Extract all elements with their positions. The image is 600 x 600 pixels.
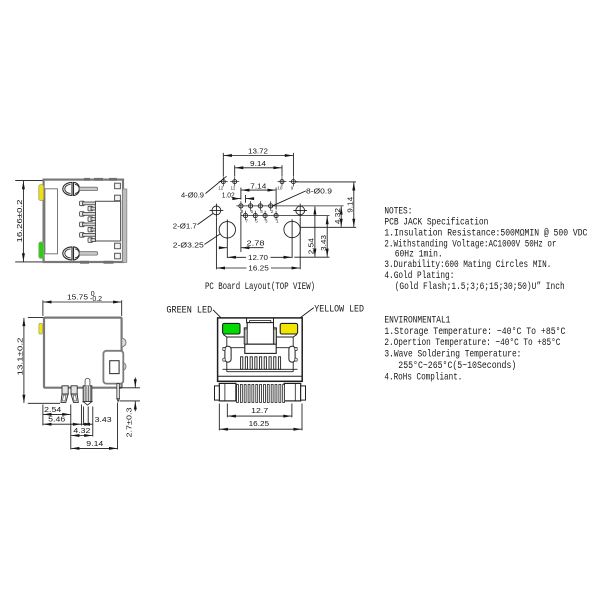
svg-text:255°C~265°C(5~10Seconds): 255°C~265°C(5~10Seconds) [398, 360, 516, 372]
svg-text:9.14: 9.14 [347, 197, 354, 213]
svg-text:(Gold Flash;1.5;3;6;15;30;50)U: (Gold Flash;1.5;3;6;15;30;50)U” Inch [395, 281, 565, 293]
svg-text:3: 3 [265, 219, 268, 224]
svg-text:11: 11 [231, 185, 236, 190]
svg-text:16.25: 16.25 [249, 421, 270, 428]
svg-text:GREEN LED: GREEN LED [166, 304, 212, 316]
svg-text:2: 2 [271, 209, 274, 214]
svg-text:1.02: 1.02 [222, 193, 235, 200]
svg-text:12.7: 12.7 [251, 408, 268, 415]
svg-text:2.54: 2.54 [309, 238, 316, 254]
svg-text:1: 1 [276, 219, 279, 224]
svg-text:4.32: 4.32 [73, 428, 90, 435]
svg-text:2-Ø1.7: 2-Ø1.7 [173, 224, 197, 231]
svg-text:9: 9 [291, 185, 294, 190]
svg-text:13.72: 13.72 [248, 149, 268, 156]
svg-text:3.43: 3.43 [95, 417, 112, 424]
svg-text:4.32: 4.32 [335, 208, 342, 224]
svg-text:5.46: 5.46 [48, 416, 65, 423]
svg-text:9.14: 9.14 [250, 161, 266, 168]
svg-text:6: 6 [251, 209, 254, 214]
svg-text:4: 4 [260, 209, 263, 214]
svg-text:7: 7 [245, 219, 248, 224]
svg-text:16.26±0.2: 16.26±0.2 [17, 199, 24, 242]
svg-text:7.14: 7.14 [250, 184, 266, 191]
svg-text:9.14: 9.14 [86, 441, 103, 448]
svg-text:16.25: 16.25 [248, 266, 269, 273]
svg-text:PC Board Layout(TOP VIEW): PC Board Layout(TOP VIEW) [205, 281, 315, 293]
svg-text:2-Ø3.25: 2-Ø3.25 [173, 243, 204, 250]
svg-text:4-Ø0.9: 4-Ø0.9 [181, 193, 204, 200]
svg-text:3.43: 3.43 [321, 235, 328, 251]
svg-text:12: 12 [218, 185, 224, 190]
svg-text:-0.2: -0.2 [90, 296, 102, 303]
svg-text:YELLOW LED: YELLOW LED [314, 303, 364, 315]
svg-text:ENVIRONMENTAL1: ENVIRONMENTAL1 [384, 315, 450, 327]
svg-text:5: 5 [255, 219, 258, 224]
svg-text:3.Wave Soldering Temperature:: 3.Wave Soldering Temperature: [384, 349, 521, 361]
svg-text:2.Opertion Temperature: −40°C: 2.Opertion Temperature: −40°C To +85°C [384, 337, 560, 349]
svg-text:2.54: 2.54 [44, 407, 61, 414]
svg-text:8-Ø0.9: 8-Ø0.9 [306, 189, 332, 196]
svg-text:10: 10 [277, 185, 283, 190]
svg-text:12.70: 12.70 [248, 255, 268, 262]
svg-text:1.Storage Temperature: −40°C: 1.Storage Temperature: −40°C To +85°C [384, 326, 565, 338]
svg-text:15.75: 15.75 [67, 294, 88, 301]
svg-text:13.1±0.2: 13.1±0.2 [17, 337, 24, 375]
svg-text:4.RoHs Compliant.: 4.RoHs Compliant. [384, 371, 462, 383]
svg-text:2.7±0.3: 2.7±0.3 [127, 407, 134, 437]
svg-text:2.78: 2.78 [247, 241, 265, 248]
